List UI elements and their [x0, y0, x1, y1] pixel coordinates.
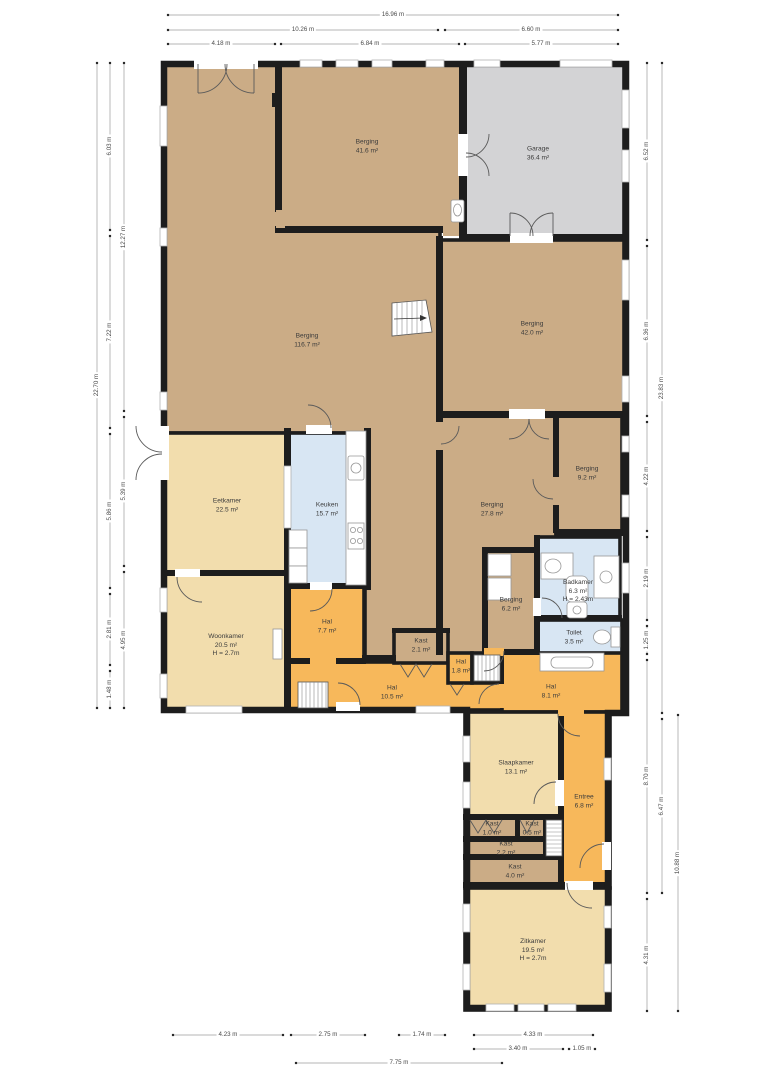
dim-right-total-upper: 23.83 m — [659, 375, 665, 401]
room-berging-41-6 — [280, 65, 462, 231]
room-woonkamer — [164, 574, 288, 710]
dim-left-seg-1: 6.03 m — [107, 135, 113, 158]
room-berging-42-0 — [440, 240, 624, 415]
washing-machine — [567, 602, 587, 618]
room-garage — [464, 65, 624, 238]
dim-right-seg-3: 4.22 m — [644, 465, 650, 488]
bathroom-sink — [541, 553, 573, 579]
hal-vanity — [540, 653, 604, 671]
dim-bottom-seg-2: 2.75 m — [317, 1032, 340, 1038]
dim-bottom-seg-3: 1.74 m — [411, 1032, 434, 1038]
staircase-hal-10-5 — [298, 682, 328, 708]
dim-right-seg-6: 8.70 m — [644, 765, 650, 788]
dim-left-seg-2: 7.22 m — [107, 321, 113, 344]
dim-left-seg-4: 2.81 m — [107, 618, 113, 641]
dim-left-inner-1: 12.27 m — [121, 224, 127, 250]
dim-bottom-seg-6: 1.05 m — [571, 1046, 594, 1052]
dim-left-inner-2: 5.39 m — [121, 480, 127, 503]
dim-top-left: 10.26 m — [290, 27, 316, 33]
dim-top-seg-2: 6.84 m — [359, 41, 382, 47]
floor-plan: Berging41.6 m² Garage36.4 m² Berging116.… — [0, 0, 764, 1080]
staircase-hal-1-8 — [474, 655, 500, 681]
room-hal-7-7 — [288, 587, 364, 662]
room-zitkamer — [465, 888, 610, 1010]
dim-left-seg-3: 5.86 m — [107, 500, 113, 523]
washbasin-berging — [451, 200, 464, 222]
dim-top-right: 6.60 m — [520, 27, 543, 33]
dim-top-total: 16.96 m — [380, 12, 406, 18]
room-berging-9-2 — [556, 415, 622, 533]
shower — [594, 556, 619, 598]
kitchen-cabinets — [289, 530, 307, 583]
dim-left-inner-3: 4.95 m — [121, 629, 127, 652]
shower-tray — [566, 576, 588, 602]
dim-bottom-seg-1: 4.23 m — [217, 1032, 240, 1038]
dim-right-seg-7: 4.31 m — [644, 944, 650, 967]
room-hal-1-8 — [448, 653, 472, 683]
dim-right-seg-4: 2.19 m — [644, 567, 650, 590]
dim-top-seg-3: 5.77 m — [530, 41, 553, 47]
dim-right-total-lower: 10.88 m — [675, 850, 681, 876]
glass-partition — [284, 466, 291, 528]
dim-right-mid: 6.47 m — [659, 795, 665, 818]
dim-right-seg-5: 1.25 m — [644, 629, 650, 652]
dim-bottom-seg-5: 3.40 m — [507, 1046, 530, 1052]
room-eetkamer — [164, 433, 287, 574]
dim-bottom-seg-4: 4.33 m — [522, 1032, 545, 1038]
dim-right-seg-2: 6.36 m — [644, 320, 650, 343]
staircase-extension — [546, 820, 562, 856]
dim-left-total: 22.70 m — [94, 372, 100, 398]
dim-left-seg-5: 1.48 m — [107, 678, 113, 701]
dim-top-seg-1: 4.18 m — [210, 41, 233, 47]
rooms — [164, 65, 624, 1010]
kitchen-counter — [346, 431, 366, 585]
dim-right-seg-1: 6.52 m — [644, 140, 650, 163]
dim-bottom-total: 7.75 m — [388, 1060, 411, 1066]
radiator-woonkamer — [273, 629, 282, 659]
eetkamer-exterior-double-door — [136, 426, 162, 480]
staircase-main — [392, 300, 432, 336]
room-slaapkamer — [465, 712, 562, 818]
